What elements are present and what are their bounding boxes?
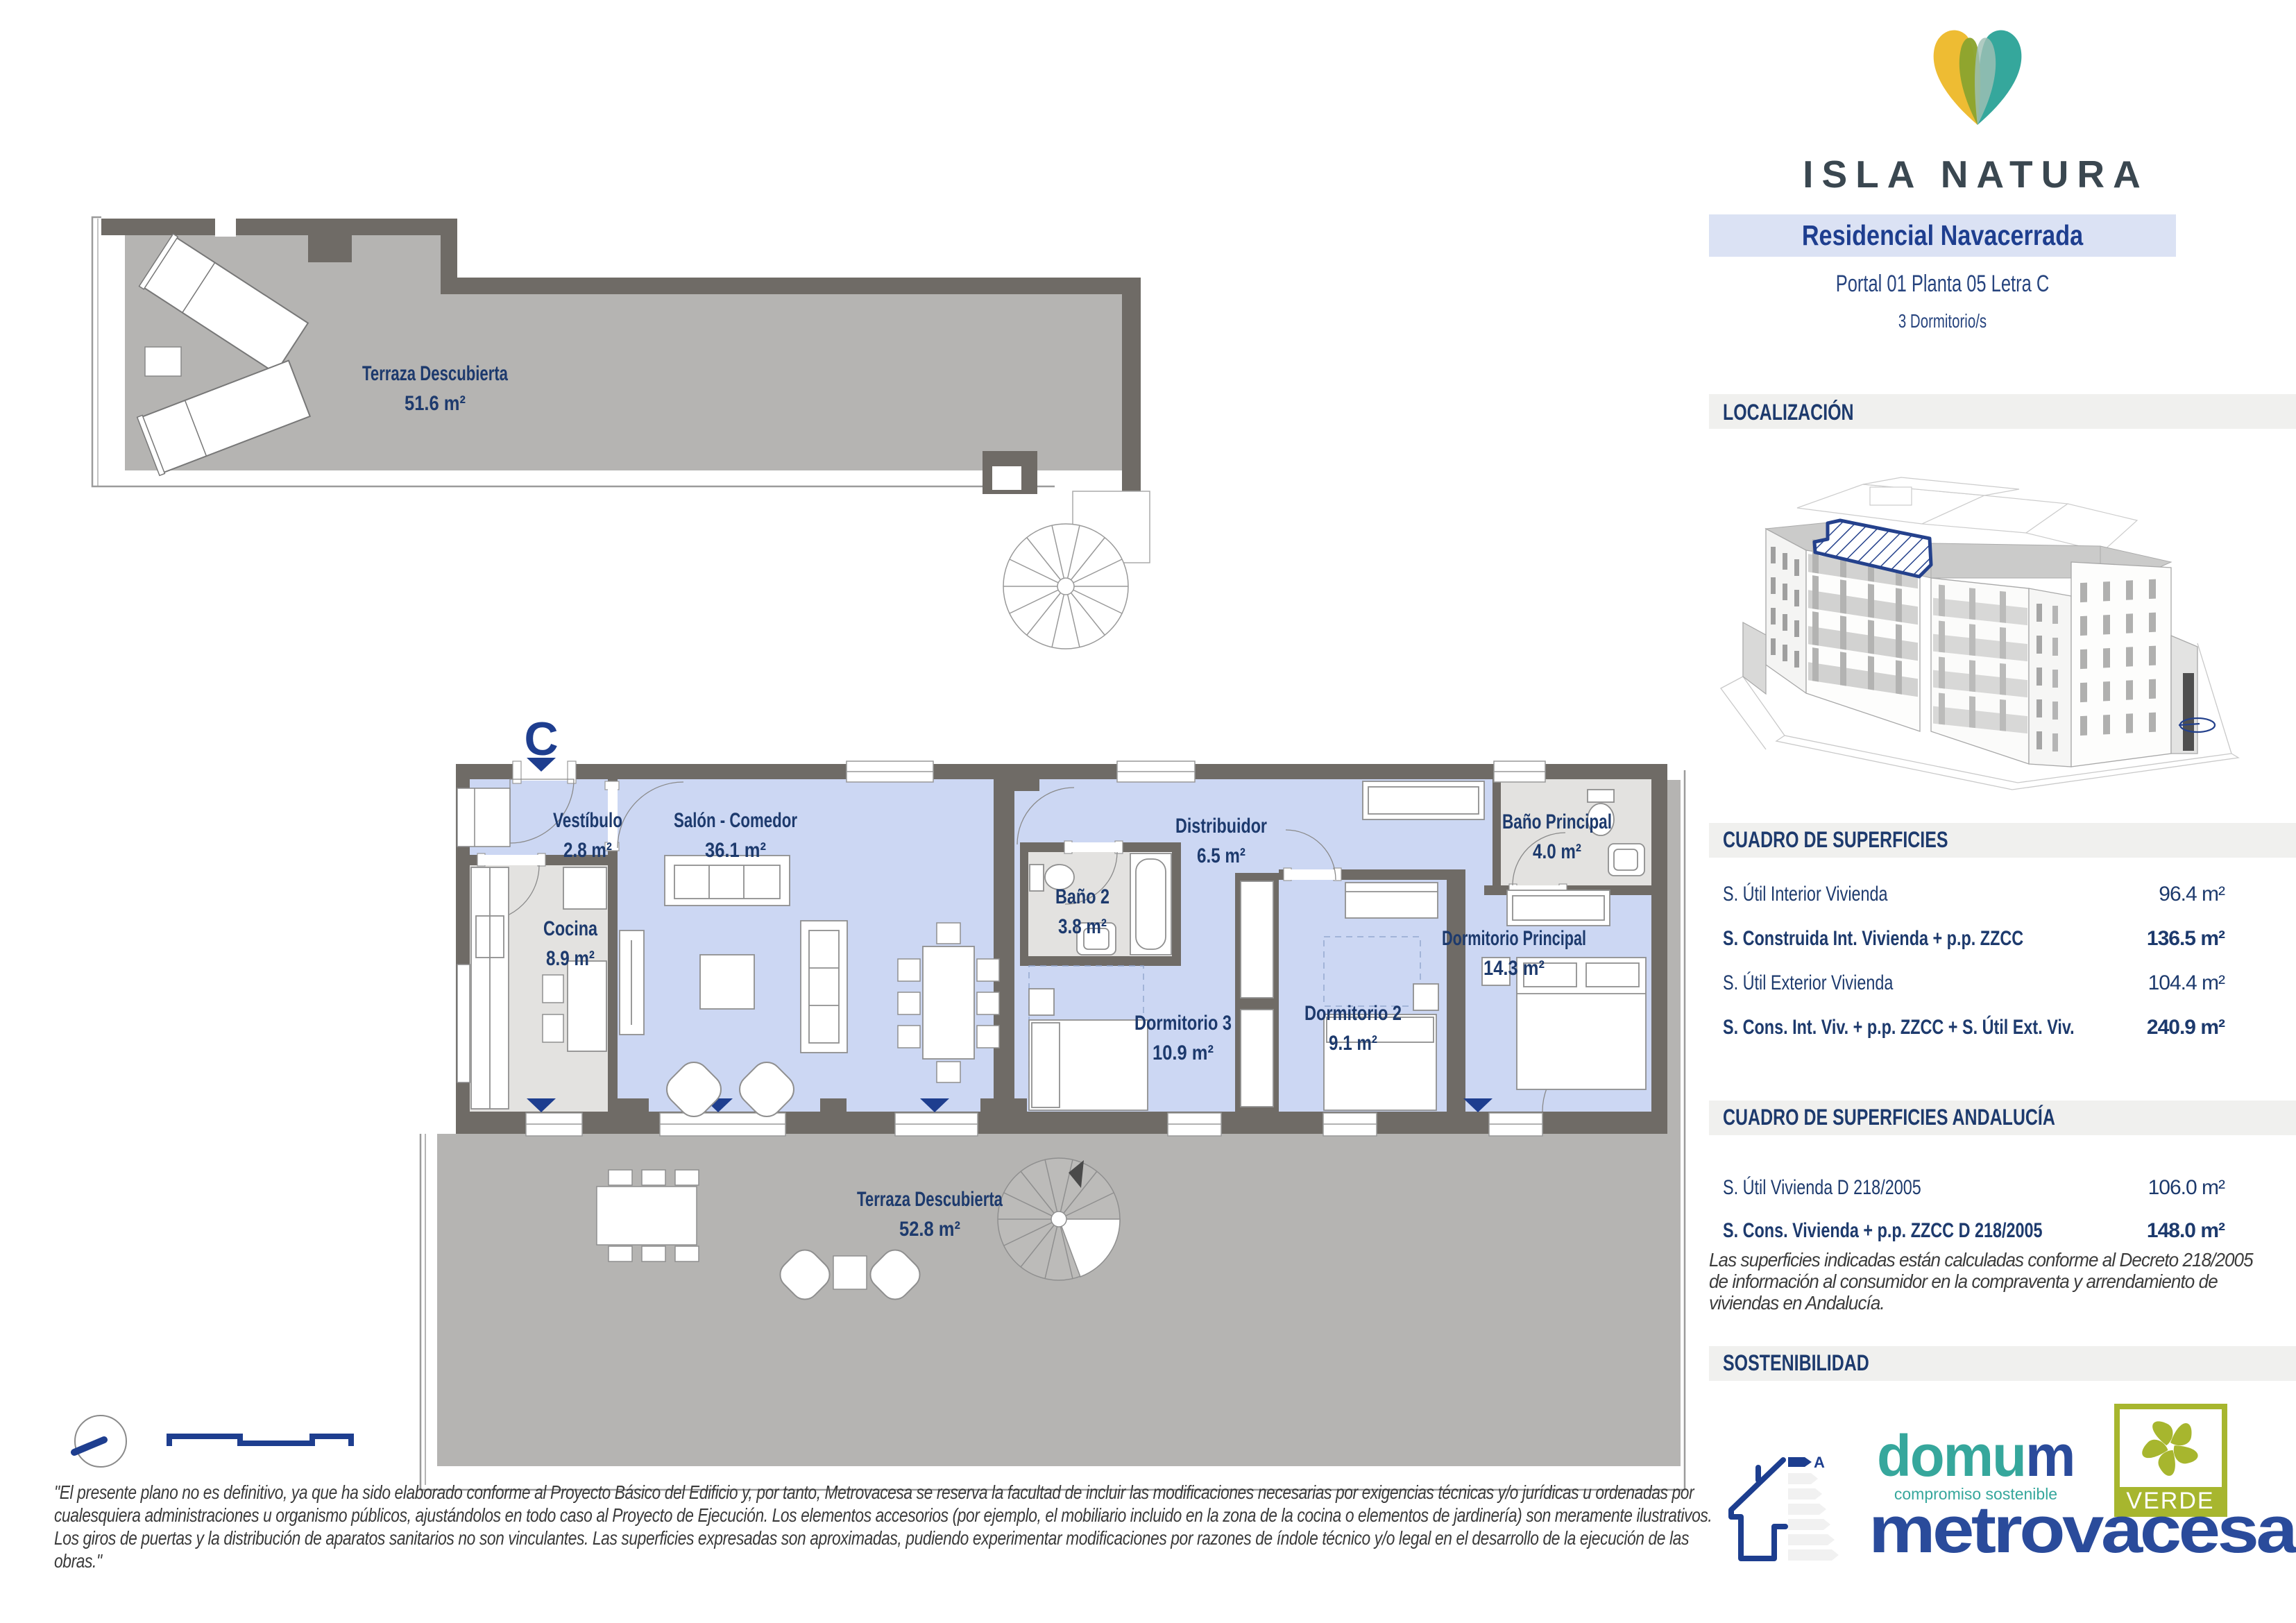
svg-text:9.1 m²: 9.1 m²	[1329, 1032, 1377, 1055]
svg-text:Distribuidor: Distribuidor	[1175, 815, 1267, 838]
svg-text:A: A	[1814, 1454, 1825, 1471]
svg-text:Baño 2: Baño 2	[1055, 885, 1109, 908]
svg-text:Terraza Descubierta: Terraza Descubierta	[857, 1188, 1003, 1211]
svg-text:36.1 m²: 36.1 m²	[705, 839, 766, 862]
svg-text:Cocina: Cocina	[543, 917, 597, 940]
svg-text:14.3 m²: 14.3 m²	[1483, 957, 1545, 980]
svg-text:2.8 m²: 2.8 m²	[563, 839, 612, 862]
svg-text:3.8 m²: 3.8 m²	[1058, 915, 1107, 938]
svg-text:51.6 m²: 51.6 m²	[405, 392, 466, 415]
svg-text:Salón - Comedor: Salón - Comedor	[674, 809, 797, 832]
svg-text:6.5 m²: 6.5 m²	[1197, 844, 1245, 867]
svg-text:Terraza Descubierta: Terraza Descubierta	[362, 362, 508, 385]
svg-text:Dormitorio 3: Dormitorio 3	[1134, 1012, 1232, 1035]
svg-text:Vestíbulo: Vestíbulo	[553, 809, 622, 832]
svg-text:52.8 m²: 52.8 m²	[899, 1218, 960, 1241]
svg-text:Dormitorio Principal: Dormitorio Principal	[1442, 927, 1586, 950]
svg-text:C: C	[524, 713, 558, 765]
svg-text:8.9 m²: 8.9 m²	[546, 947, 595, 970]
svg-text:10.9 m²: 10.9 m²	[1153, 1042, 1214, 1064]
svg-text:Dormitorio 2: Dormitorio 2	[1304, 1002, 1402, 1025]
svg-text:4.0 m²: 4.0 m²	[1533, 840, 1581, 863]
svg-text:Baño Principal: Baño Principal	[1502, 810, 1612, 833]
